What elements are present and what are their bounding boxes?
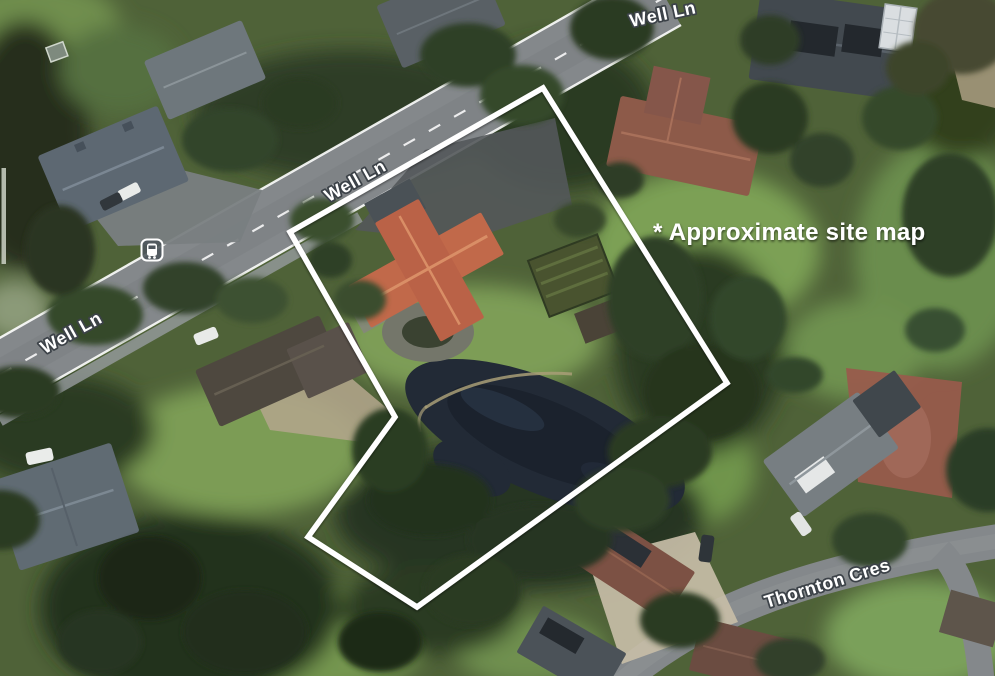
tree-cluster <box>554 202 606 238</box>
tree-cluster <box>290 198 354 242</box>
tree-cluster <box>886 41 950 95</box>
tree-cluster <box>862 86 938 150</box>
tree-cluster <box>905 308 965 352</box>
tree-cluster <box>58 610 142 674</box>
tree-cluster <box>182 108 278 172</box>
tree-cluster <box>640 592 720 648</box>
tree-cluster <box>902 153 995 277</box>
tree-cluster <box>143 262 227 314</box>
tree-cluster <box>574 468 670 532</box>
tree-cluster <box>183 590 307 674</box>
tree-cluster <box>338 612 422 672</box>
hedge-highlight <box>2 168 7 264</box>
tree-cluster <box>732 82 808 154</box>
bus-body <box>147 244 157 257</box>
site-note: * Approximate site map <box>653 219 925 246</box>
tree-cluster <box>790 133 854 187</box>
map-canvas: Well Ln Well Ln Well Ln Thornton Cres * … <box>0 0 995 676</box>
solar-panels <box>841 24 885 57</box>
bus-wheel <box>153 256 156 259</box>
tree-cluster <box>216 277 288 323</box>
bus-wheel <box>148 256 151 259</box>
tree-cluster <box>25 205 95 295</box>
tree-cluster <box>98 536 202 620</box>
tree-cluster <box>334 280 386 320</box>
tree-cluster <box>607 236 703 360</box>
tree-cluster <box>710 276 786 360</box>
tree-cluster <box>740 15 800 65</box>
site-map-image: Well Ln Well Ln Well Ln Thornton Cres * … <box>0 0 995 676</box>
tree-cluster <box>767 357 823 393</box>
tree-cluster <box>262 77 338 129</box>
bus-stop-icon <box>142 240 163 261</box>
bus-window <box>149 246 156 250</box>
